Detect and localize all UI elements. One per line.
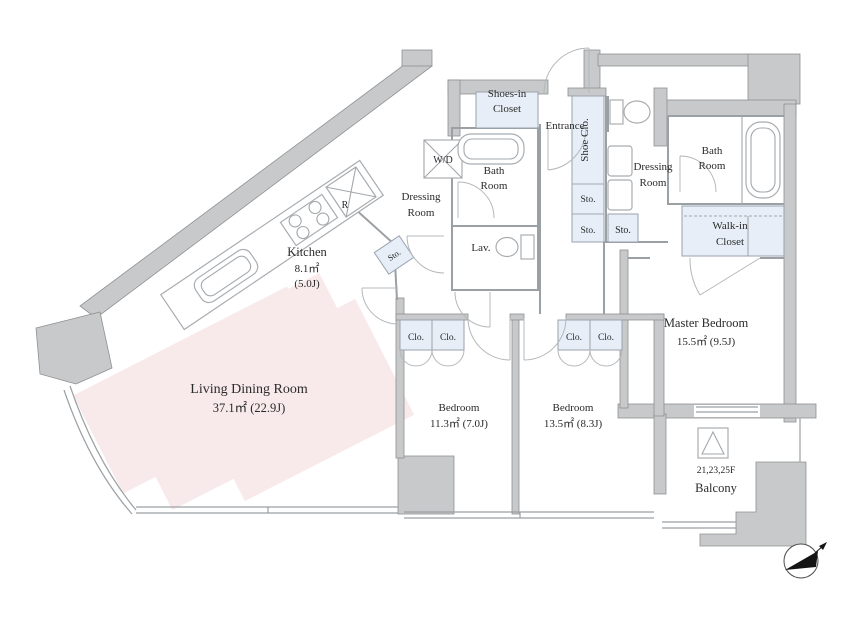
compass-icon xyxy=(784,542,827,578)
closet-label-2b: Clo. xyxy=(598,333,614,343)
closet-label-1b: Clo. xyxy=(440,333,456,343)
master-bedroom-label: Master Bedroom xyxy=(664,316,749,330)
bedroom-2-area: 13.5㎡ (8.3J) xyxy=(544,417,603,430)
walk-in-closet-label-1: Walk-in xyxy=(712,220,748,232)
dressing-room-right-label-2: Room xyxy=(640,177,667,189)
toilet-right xyxy=(610,100,650,124)
bathtub-right xyxy=(746,122,780,198)
shoe-closet-label: Shoe Clo. xyxy=(579,118,591,162)
shoes-in-closet-label-2: Closet xyxy=(493,103,521,115)
bath-room-left-label-1: Bath xyxy=(484,165,505,177)
balcony-label: Balcony xyxy=(695,481,737,495)
master-bedroom-area: 15.5㎡ (9.5J) xyxy=(677,335,736,348)
floor-plan-drawing: Shoes-in Closet Entrance Shoe Clo. Sto. … xyxy=(0,0,851,622)
storage-label-shoe-2: Sto. xyxy=(580,226,595,236)
bath-room-right-label-2: Room xyxy=(699,160,726,172)
toilet-lavatory xyxy=(496,235,534,259)
refrigerator-label: R xyxy=(342,200,349,211)
bath-room-right-label-1: Bath xyxy=(702,145,723,157)
kitchen-area-tatami: (5.0J) xyxy=(294,278,320,290)
kitchen-label: Kitchen xyxy=(287,245,327,259)
floor-plan: Shoes-in Closet Entrance Shoe Clo. Sto. … xyxy=(0,0,851,622)
dressing-room-left-label-1: Dressing xyxy=(401,191,441,203)
washer-dryer-label: W/D xyxy=(433,155,452,166)
bedroom-2-label: Bedroom xyxy=(553,402,594,414)
walk-in-closet-label-2: Closet xyxy=(716,236,744,248)
shoes-in-closet-label-1: Shoes-in xyxy=(488,88,527,100)
bedroom-1-label: Bedroom xyxy=(439,402,480,414)
living-dining-label: Living Dining Room xyxy=(190,382,308,397)
bedroom-1-area: 11.3㎡ (7.0J) xyxy=(430,417,488,430)
living-dining-area: 37.1㎡ (22.9J) xyxy=(213,401,286,415)
storage-label-shoe-1: Sto. xyxy=(580,195,595,205)
wash-basin-counter xyxy=(608,146,632,210)
lavatory-label: Lav. xyxy=(471,242,490,254)
bath-room-left-label-2: Room xyxy=(481,180,508,192)
kitchen-area-m2: 8.1㎡ xyxy=(295,262,320,275)
closet-label-1a: Clo. xyxy=(408,333,424,343)
closet-label-2a: Clo. xyxy=(566,333,582,343)
bathtub-left xyxy=(458,134,524,164)
dressing-room-right-label-1: Dressing xyxy=(633,161,673,173)
storage-label-dressing: Sto. xyxy=(615,225,631,236)
dressing-room-left-label-2: Room xyxy=(408,207,435,219)
balcony-floor-note: 21,23,25F xyxy=(697,466,736,476)
escape-hatch xyxy=(698,428,728,458)
